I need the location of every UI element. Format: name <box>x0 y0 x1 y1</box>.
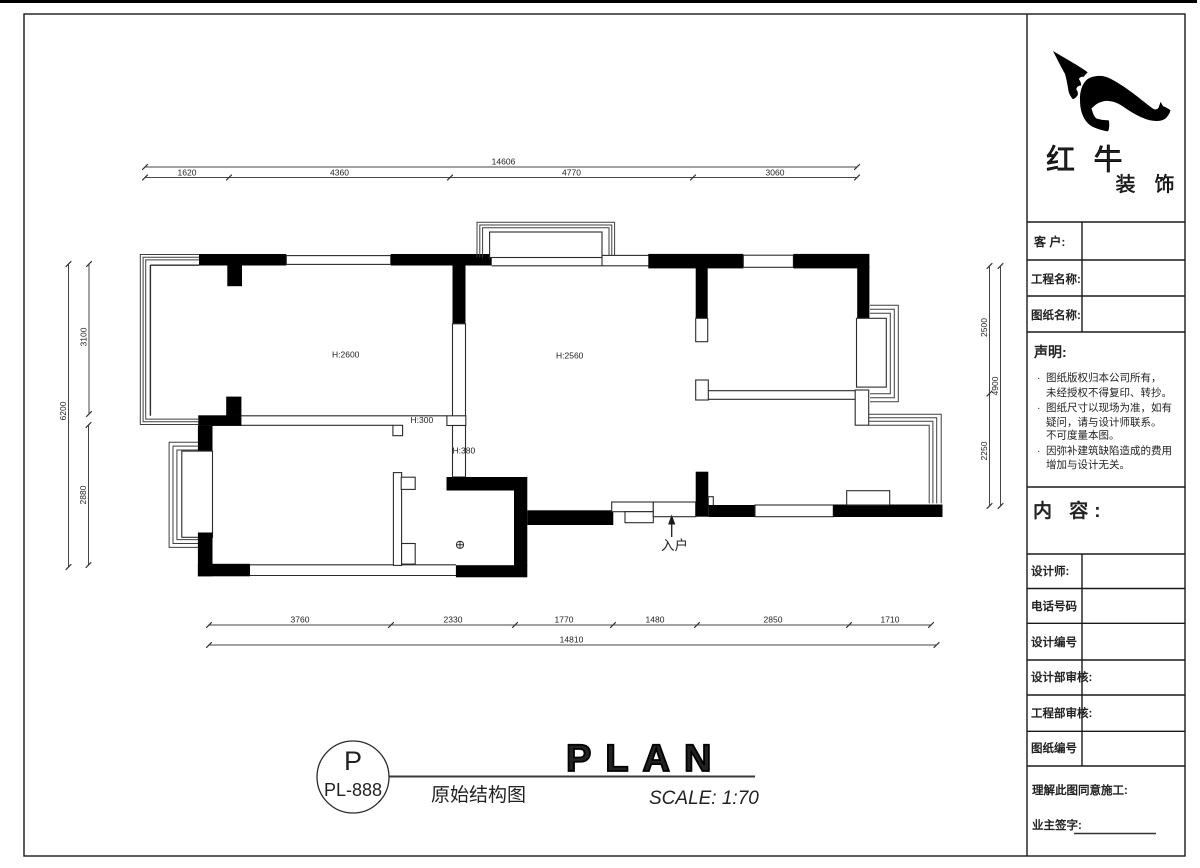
svg-text:H:300: H:300 <box>411 415 434 425</box>
svg-text:SCALE: 1:70: SCALE: 1:70 <box>649 788 759 809</box>
svg-text:客 户:: 客 户: <box>1033 234 1065 249</box>
svg-text:设计师:: 设计师: <box>1031 564 1069 578</box>
svg-text:P: P <box>344 746 362 776</box>
svg-text:电话号码: 电话号码 <box>1031 599 1077 613</box>
svg-text:PLAN: PLAN <box>566 738 725 780</box>
svg-text:增加与设计无关。: 增加与设计无关。 <box>1046 458 1130 471</box>
svg-text:H:2560: H:2560 <box>556 351 584 361</box>
svg-text:图纸尺寸以现场为准，如有: 图纸尺寸以现场为准，如有 <box>1046 401 1172 414</box>
svg-text:工程名称:: 工程名称: <box>1031 272 1081 286</box>
svg-text:设计部审核:: 设计部审核: <box>1031 670 1092 684</box>
svg-text:14606: 14606 <box>492 157 516 167</box>
svg-text:未经授权不得复印、转抄。: 未经授权不得复印、转抄。 <box>1046 386 1172 399</box>
svg-text:原始结构图: 原始结构图 <box>431 784 526 806</box>
svg-text:因弥补建筑缺陷造成的费用: 因弥补建筑缺陷造成的费用 <box>1046 444 1172 457</box>
svg-text:不可度量本图。: 不可度量本图。 <box>1046 429 1120 442</box>
svg-text:1620: 1620 <box>178 168 197 178</box>
svg-text:1710: 1710 <box>881 615 900 625</box>
svg-text:业主签字:: 业主签字: <box>1032 818 1082 832</box>
svg-text:装饰: 装饰 <box>1116 173 1194 196</box>
svg-text:图纸名称:: 图纸名称: <box>1031 308 1081 322</box>
svg-text:4770: 4770 <box>562 168 581 178</box>
svg-text:图纸编号: 图纸编号 <box>1031 741 1077 755</box>
svg-text:工程部审核:: 工程部审核: <box>1031 706 1092 720</box>
svg-text:2330: 2330 <box>444 615 463 625</box>
svg-text:设计编号: 设计编号 <box>1031 635 1077 649</box>
svg-text:PL-888: PL-888 <box>324 780 382 800</box>
svg-text:H:2600: H:2600 <box>332 350 360 360</box>
svg-text:6200: 6200 <box>58 401 68 420</box>
svg-text:图纸版权归本公司所有，: 图纸版权归本公司所有， <box>1046 371 1162 384</box>
svg-text:3760: 3760 <box>291 615 310 625</box>
svg-text:2850: 2850 <box>764 615 783 625</box>
svg-text:4900: 4900 <box>990 376 1000 395</box>
svg-text:2500: 2500 <box>979 318 989 337</box>
svg-text:·: · <box>1037 445 1041 457</box>
svg-text:·: · <box>1037 402 1041 414</box>
svg-text:·: · <box>1037 372 1041 384</box>
svg-text:1480: 1480 <box>646 615 665 625</box>
svg-text:3060: 3060 <box>766 168 785 178</box>
svg-text:H:380: H:380 <box>453 445 476 455</box>
svg-text:疑问，请与设计师联系。: 疑问，请与设计师联系。 <box>1046 416 1162 429</box>
svg-text:3100: 3100 <box>79 327 89 346</box>
svg-text:理解此图同意施工:: 理解此图同意施工: <box>1032 783 1128 797</box>
svg-text:14810: 14810 <box>560 635 584 645</box>
svg-text:4360: 4360 <box>330 168 349 178</box>
svg-text:入户: 入户 <box>661 537 688 553</box>
svg-text:声明:: 声明: <box>1033 344 1067 360</box>
svg-text:红牛: 红牛 <box>1046 144 1141 177</box>
svg-text:内 容:: 内 容: <box>1033 499 1107 522</box>
svg-text:2250: 2250 <box>979 441 989 460</box>
svg-text:1770: 1770 <box>555 615 574 625</box>
svg-text:2880: 2880 <box>78 485 88 504</box>
